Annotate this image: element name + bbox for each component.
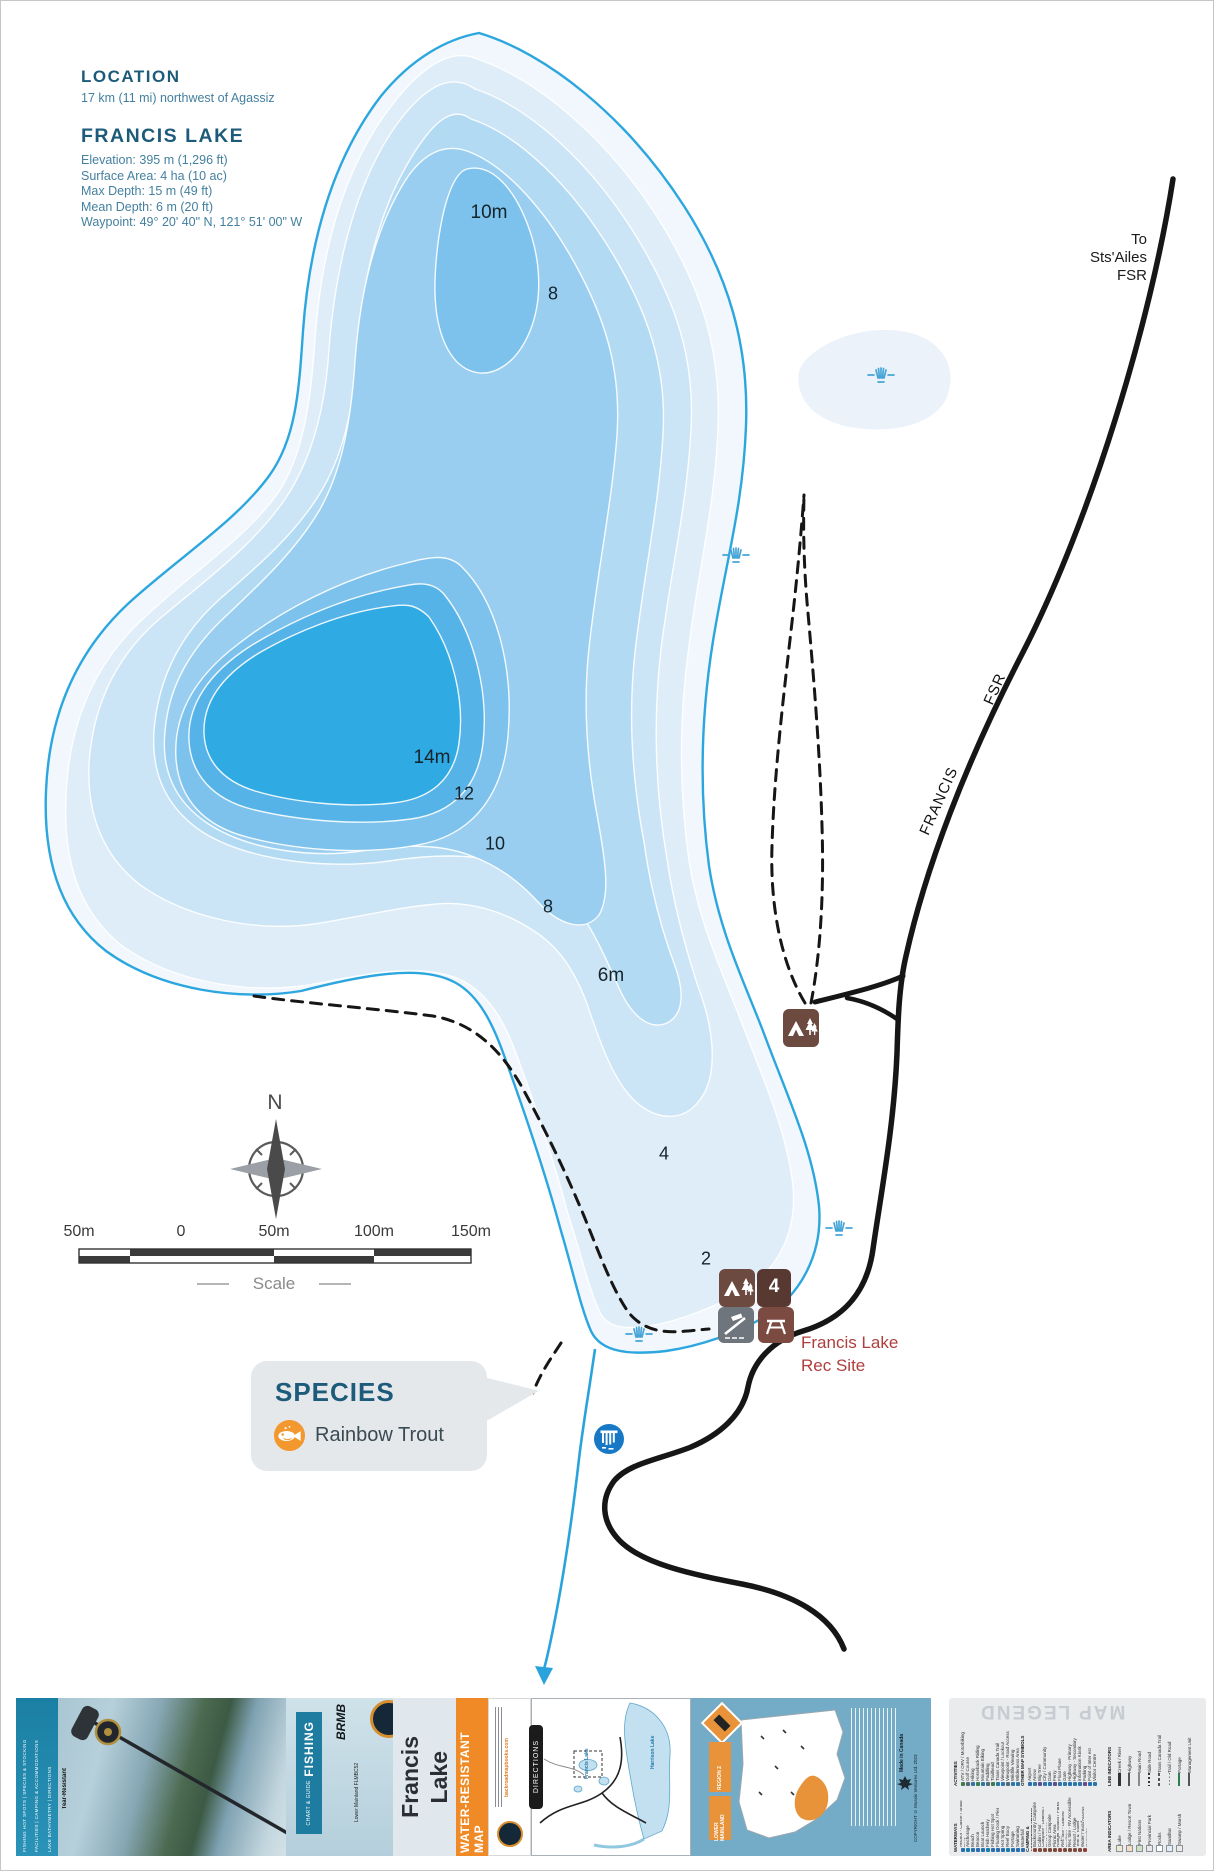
- legend-item-icon: [1011, 1782, 1015, 1786]
- legend-line-sample: [1178, 1773, 1181, 1786]
- legend-item: First Nations: [1134, 1795, 1144, 1852]
- compass-ns-point: [267, 1119, 285, 1219]
- creek-crossing-trail: [533, 1343, 561, 1393]
- cover-title-line: Lake: [426, 1751, 453, 1803]
- copyright-label: COPYRIGHT © Mussio Ventures Ltd. 2023: [913, 1712, 918, 1842]
- location-title: LOCATION: [81, 67, 381, 87]
- compass-north-label: N: [267, 1091, 282, 1115]
- legend-area-swatch: [1136, 1845, 1143, 1852]
- wetland-patch: [798, 330, 950, 429]
- legend-item-icon: [996, 1848, 1000, 1852]
- legend-line-sample: [1128, 1773, 1130, 1786]
- legend-item-icon: [1063, 1782, 1067, 1786]
- legend-item-icon: [961, 1848, 965, 1852]
- legend-item-icon: [1083, 1848, 1087, 1852]
- publisher-address-microtext: [495, 1707, 502, 1807]
- legend-item-icon: [1038, 1848, 1042, 1852]
- legend-item-icon: [1043, 1848, 1047, 1852]
- legend-item-icon: [1073, 1782, 1077, 1786]
- legend-row-1: ACTIVITIES ATV / ORV / MotorbikingGolf C…: [953, 1720, 1105, 1786]
- legend-group-other-symbols: AirportArrowBig TreeCity / CommunityDamF…: [1027, 1731, 1097, 1786]
- legend-item-icon: [971, 1782, 975, 1786]
- fish-icon: [273, 1419, 306, 1452]
- bathymetric-map: [1, 1, 1214, 1871]
- legend-item-icon: [1053, 1848, 1057, 1852]
- legend-item-icon: [1016, 1848, 1020, 1852]
- legend-group-heading: ACTIVITIES: [953, 1726, 960, 1786]
- legend-area-swatch: [1166, 1845, 1173, 1852]
- scale-tick: 100m: [354, 1223, 394, 1241]
- legend-item-icon: [1058, 1782, 1062, 1786]
- legend-item-icon: [1063, 1848, 1067, 1852]
- lake-depth-bands: [46, 33, 820, 1353]
- depth-label: 10: [485, 834, 505, 855]
- legend-item-icon: [1001, 1848, 1005, 1852]
- legend-item-icon: [1073, 1848, 1077, 1852]
- depth-label: 8: [543, 897, 553, 918]
- legend-item-icon: [1001, 1782, 1005, 1786]
- province-map: [731, 1706, 849, 1848]
- legend-item: Highway: [1124, 1723, 1134, 1786]
- legend-item-icon: [1068, 1848, 1072, 1852]
- legend-item-icon: [996, 1782, 1000, 1786]
- map-page: LOCATION 17 km (11 mi) northwest of Agas…: [0, 0, 1214, 1871]
- legend-item: Visitor Centre: [1092, 1731, 1097, 1786]
- water-resistant-strip: WATER-RESISTANT MAP: [456, 1698, 488, 1856]
- region-panel: REGION 2 LOWER MAINLAND Made in Canada C…: [691, 1698, 931, 1856]
- legend-item-icon: [1058, 1848, 1062, 1852]
- legend-item-icon: [1038, 1782, 1042, 1786]
- region-badge-sub: LOWER MAINLAND: [709, 1796, 731, 1840]
- cover-banner-panel: FISHING CHART & GUIDE BRMB Lower Mainlan…: [286, 1698, 393, 1856]
- legend-item-icon: [1006, 1782, 1010, 1786]
- legend-line-sample: [1138, 1773, 1140, 1786]
- legend-item: Water / Boat Access Campsite: [1082, 1797, 1087, 1852]
- legend-item-icon: [1021, 1848, 1025, 1852]
- legend-item-icon: [1078, 1782, 1082, 1786]
- boat-launch-icon: [718, 1307, 754, 1343]
- rec-site-label: Francis Lake Rec Site: [801, 1331, 898, 1377]
- legend-group-heading: OTHER MAP SYMBOLS: [1020, 1726, 1027, 1786]
- series-code: Lower Mainland FLMBC52: [354, 1746, 360, 1822]
- lake-stats: Elevation: 395 m (1,296 ft) Surface Area…: [81, 153, 381, 231]
- legend-line-sample: [1169, 1773, 1170, 1786]
- lake-title: FRANCIS LAKE: [81, 125, 381, 148]
- legend-item-icon: [1078, 1848, 1082, 1852]
- maple-leaf-icon: [897, 1776, 913, 1792]
- legend-item-icon: [1068, 1782, 1072, 1786]
- legend-item-icon: [961, 1782, 965, 1786]
- legend-row-areas: AREA INDICATORS LakeLodge / Resort TownF…: [1107, 1786, 1203, 1852]
- legend-item-icon: [1093, 1782, 1097, 1786]
- legend-item-icon: [991, 1848, 995, 1852]
- legend-area-swatch: [1126, 1845, 1133, 1852]
- legend-area-swatch: [1176, 1845, 1183, 1852]
- scale-tick: 150m: [451, 1223, 491, 1241]
- legend-item-icon: [1053, 1782, 1057, 1786]
- scale-tick: 50m: [63, 1223, 94, 1241]
- directions-panel: DIRECTIONS Harrison Lake Francis Lake: [531, 1698, 691, 1856]
- species-callout: SPECIES Rainbow Trout: [251, 1361, 487, 1471]
- legend-item: Lake: [1114, 1795, 1124, 1852]
- publisher-panel: backroadmapbooks.com: [488, 1698, 531, 1856]
- legend-item: Creek / River: [1114, 1723, 1124, 1786]
- legend-item-icon: [1048, 1782, 1052, 1786]
- depth-label: 10m: [471, 202, 508, 224]
- scale-caption-dash: [319, 1283, 351, 1285]
- brmb-wordmark: BRMB: [334, 1704, 348, 1740]
- legend-item-icon: [1033, 1782, 1037, 1786]
- cover-feature-line: FACILITIES | CAMPING & ACCOMMODATIONS: [34, 1702, 39, 1852]
- east-loop-trail-b: [804, 495, 823, 1003]
- banner-title: FISHING: [302, 1721, 316, 1777]
- made-in-canada-label: Made in Canada: [899, 1712, 905, 1772]
- legend-item: Rocks: [1154, 1795, 1164, 1852]
- legend-item-icon: [971, 1848, 975, 1852]
- creek-flow-arrow: [535, 1666, 553, 1685]
- directions-inset-map: [532, 1699, 690, 1855]
- stat-mean-depth: Mean Depth: 6 m (20 ft): [81, 200, 381, 216]
- legend-group-activities: ATV / ORV / MotorbikingGolf CourseHiking…: [960, 1731, 1020, 1786]
- legend-line-sample: [1188, 1773, 1190, 1786]
- legend-item: Main Road: [1134, 1723, 1144, 1786]
- stat-elevation: Elevation: 395 m (1,296 ft): [81, 153, 381, 169]
- tear-resistant-label: Tear-Resistant: [62, 1768, 68, 1809]
- legend-item-icon: [1006, 1848, 1010, 1852]
- stat-surface-area: Surface Area: 4 ha (10 ac): [81, 169, 381, 185]
- legend-group-lines: Creek / RiverHighwayMain RoadSide RoadTr…: [1114, 1723, 1194, 1786]
- east-loop-trail-a: [772, 495, 805, 1003]
- compass-rose: [230, 1119, 322, 1219]
- campground-icon-north: [783, 1009, 819, 1047]
- legend-item-icon: [1088, 1782, 1092, 1786]
- species-item: Rainbow Trout: [273, 1419, 444, 1452]
- scale-caption-dash: [197, 1283, 229, 1285]
- legend-item-icon: [1083, 1782, 1087, 1786]
- legend-item-icon: [981, 1848, 985, 1852]
- location-text: 17 km (11 mi) northwest of Agassiz: [81, 91, 381, 105]
- region-badge: REGION 2: [709, 1742, 731, 1792]
- legend-row-2: WATERWAYS Anchor - Canoe / Small BoatAnc…: [953, 1786, 1105, 1852]
- legend-item: Sandbar: [1164, 1795, 1174, 1852]
- picnic-table-icon: [758, 1307, 794, 1343]
- legend-item-icon: [991, 1782, 995, 1786]
- depth-label: 6m: [598, 965, 624, 987]
- legend-item-icon: [966, 1848, 970, 1852]
- legend-item: Side Road: [1144, 1723, 1154, 1786]
- fishing-banner: FISHING CHART & GUIDE: [296, 1712, 322, 1834]
- outlet-creek: [535, 1349, 595, 1685]
- legend-row-lines: LINE INDICATORS Creek / RiverHighwayMain…: [1107, 1720, 1203, 1786]
- region-fineprint-microtext: [851, 1708, 897, 1826]
- directions-tab: DIRECTIONS: [529, 1725, 543, 1809]
- legend-item: Provincial Park: [1144, 1795, 1154, 1852]
- legend-item-icon: [986, 1782, 990, 1786]
- legend-group-heading: CAMPING & ACCOMMODATIONS: [1025, 1792, 1032, 1852]
- to-road-label: To Sts'Ailes FSR: [1041, 231, 1147, 285]
- info-header: LOCATION 17 km (11 mi) northwest of Agas…: [81, 67, 381, 231]
- depth-label: 2: [701, 1249, 711, 1270]
- legend-group-heading: WATERWAYS: [953, 1792, 960, 1852]
- depth-label: 8: [548, 284, 558, 305]
- legend-item: Trans Canada Trail: [1154, 1723, 1164, 1786]
- legend-group-areas: LakeLodge / Resort TownFirst NationsProv…: [1114, 1795, 1184, 1852]
- legend-area-swatch: [1116, 1845, 1123, 1852]
- legend-item-icon: [981, 1782, 985, 1786]
- fishing-rod-photo: [16, 1698, 301, 1856]
- scale-tick: 50m: [258, 1223, 289, 1241]
- inset-francis-label: Francis Lake: [584, 1735, 590, 1779]
- species-title: SPECIES: [275, 1377, 395, 1408]
- legend-group-heading: AREA INDICATORS: [1107, 1792, 1114, 1852]
- legend-item: Portage: [1174, 1723, 1184, 1786]
- scale-bar: [79, 1249, 471, 1263]
- cover-feature-line: LAKE BATHYMETRY | DIRECTIONS: [47, 1702, 52, 1852]
- legend-area-swatch: [1146, 1845, 1153, 1852]
- depth-label: 14m: [414, 747, 451, 769]
- map-legend-panel: MAP LEGEND ACTIVITIES ATV / ORV / Motorb…: [949, 1698, 1206, 1856]
- water-resistant-label: WATER-RESISTANT MAP: [458, 1701, 486, 1853]
- brmb-logo: [497, 1821, 523, 1847]
- legend-item-icon: [976, 1782, 980, 1786]
- legend-item-icon: [966, 1782, 970, 1786]
- depth-label: 4: [659, 1144, 669, 1165]
- legend-line-sample: [1148, 1773, 1150, 1786]
- legend-line-sample: [1118, 1773, 1121, 1786]
- legend-item-icon: [1048, 1848, 1052, 1852]
- stat-max-depth: Max Depth: 15 m (49 ft): [81, 184, 381, 200]
- waterfall-icon: [594, 1424, 624, 1454]
- legend-item-icon: [1033, 1848, 1037, 1852]
- scale-tick: 0: [177, 1223, 186, 1241]
- banner-subtitle: CHART & GUIDE: [306, 1780, 312, 1826]
- legend-group-heading: LINE INDICATORS: [1107, 1726, 1114, 1786]
- legend-item-icon: [986, 1848, 990, 1852]
- campground-icon-recsite: [719, 1269, 755, 1307]
- legend-area-swatch: [1156, 1845, 1163, 1852]
- map-legend-title: MAP LEGEND: [979, 1700, 1125, 1722]
- legend-group-camping: Backcountry CampsiteCabin / HutCampsite …: [1032, 1797, 1087, 1852]
- legend-item: Swamp / Marsh: [1174, 1795, 1184, 1852]
- legend-line-sample: [1158, 1773, 1160, 1786]
- cover-feature-strip: FISHING HOT SPOTS | SPECIES & STOCKING F…: [16, 1698, 58, 1856]
- campsite-capacity: 4: [757, 1270, 791, 1304]
- stat-waypoint: Waypoint: 49° 20' 40" N, 121° 51' 00" W: [81, 215, 381, 231]
- inset-harrison-label: Harrison Lake: [650, 1713, 656, 1769]
- publisher-website: backroadmapbooks.com: [504, 1707, 510, 1797]
- cover-title-panel: Francis Lake: [393, 1698, 456, 1856]
- legend-item: Management Unit: [1184, 1723, 1194, 1786]
- legend-item-icon: [1028, 1782, 1032, 1786]
- cover-title-line: Francis: [397, 1736, 424, 1818]
- junction-leg: [847, 998, 897, 1019]
- legend-item-icon: [976, 1848, 980, 1852]
- cover-photo-panel: FISHING HOT SPOTS | SPECIES & STOCKING F…: [16, 1698, 301, 1856]
- legend-group-waterways: Anchor - Canoe / Small BoatAnchorageBeac…: [960, 1797, 1025, 1852]
- legend-item-icon: [1011, 1848, 1015, 1852]
- legend-item: Trail / Old Road: [1164, 1723, 1174, 1786]
- scale-caption: Scale: [253, 1274, 296, 1294]
- legend-item: Lodge / Resort Town: [1124, 1795, 1134, 1852]
- campground-spur-road: [815, 976, 903, 1002]
- legend-item-icon: [1016, 1782, 1020, 1786]
- species-name: Rainbow Trout: [315, 1424, 444, 1447]
- cover-feature-line: FISHING HOT SPOTS | SPECIES & STOCKING: [22, 1702, 27, 1852]
- depth-label: 12: [454, 784, 474, 805]
- legend-item-icon: [1043, 1782, 1047, 1786]
